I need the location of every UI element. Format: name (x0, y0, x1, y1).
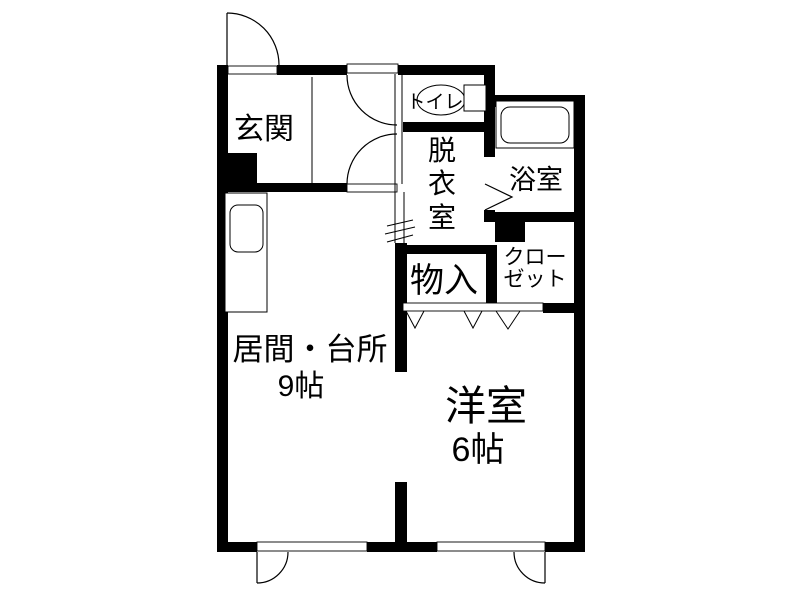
window-bottom-right (437, 542, 545, 551)
closet-label-line1: クロー (504, 246, 567, 269)
genkan-label: 玄関 (234, 113, 294, 146)
bathtub-inner (501, 107, 569, 143)
floor-plan-canvas: 玄関 トイレ 脱衣室 浴室 物入 クロー ゼット 居間・台所 9帖 洋室 6帖 (0, 0, 800, 600)
dressing-label: 脱衣室 (428, 135, 456, 233)
wall-top-mid (277, 65, 347, 75)
wall-corridor-bottom (228, 183, 347, 192)
window-bottom-left (257, 542, 367, 551)
wall-top-right (398, 65, 495, 75)
wall-bottom-a (217, 542, 257, 552)
western-size-label: 6帖 (452, 431, 505, 469)
kitchen-sink (230, 205, 263, 252)
wall-bottom-c (545, 542, 585, 552)
wall-living-western-lower (395, 482, 407, 552)
wall-toilet-bottom (403, 122, 487, 132)
entrance-threshold (228, 66, 277, 74)
wall-bottom-b (367, 542, 437, 552)
bath-label: 浴室 (509, 165, 563, 195)
wall-right (574, 95, 585, 552)
toilet-tank-icon (464, 85, 486, 111)
floor-plan-page: 玄関 トイレ 脱衣室 浴室 物入 クロー ゼット 居間・台所 9帖 洋室 6帖 (0, 0, 800, 600)
wall-storage-top (403, 245, 497, 254)
wall-closet-bottom (543, 303, 585, 313)
wall-closet-notch (495, 212, 525, 242)
living-size-label: 9帖 (278, 370, 325, 403)
toilet-label: トイレ (406, 92, 463, 113)
western-label: 洋室 (445, 383, 527, 429)
closet-label-line2: ゼット (504, 268, 567, 291)
storage-label: 物入 (410, 262, 478, 300)
living-label: 居間・台所 (233, 332, 388, 367)
top-window (347, 64, 398, 73)
corridor-opening (347, 184, 397, 192)
wall-storage-closet-divider (486, 245, 497, 303)
closet-opening-band (403, 303, 543, 311)
